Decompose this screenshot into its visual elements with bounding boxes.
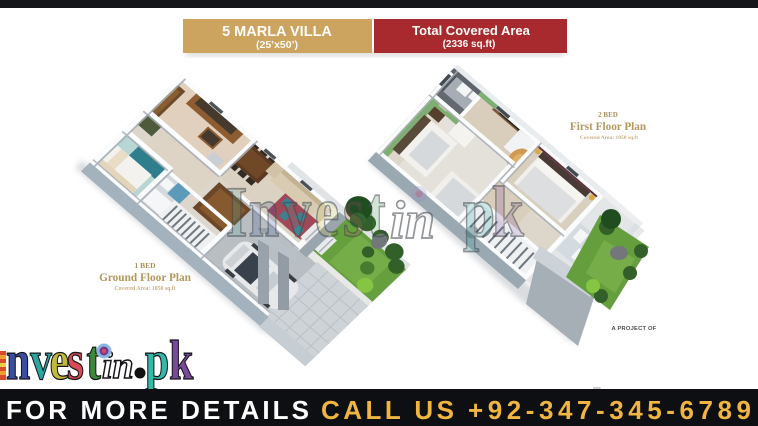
svg-text:s: s — [67, 329, 84, 391]
svg-text:p: p — [463, 173, 495, 253]
svg-text:s: s — [343, 172, 364, 252]
svg-text:First Floor Plan: First Floor Plan — [570, 121, 647, 133]
svg-text:(25’x50’): (25’x50’) — [256, 39, 298, 51]
svg-text:k: k — [492, 173, 525, 253]
svg-text:in: in — [390, 190, 435, 250]
svg-text:5 MARLA VILLA: 5 MARLA VILLA — [222, 24, 332, 40]
svg-text:n: n — [6, 329, 30, 391]
svg-text:+92-347-345-6789: +92-347-345-6789 — [468, 395, 751, 425]
svg-text:A PROJECT OF: A PROJECT OF — [611, 326, 656, 332]
svg-text:t: t — [367, 172, 386, 252]
svg-text:2 BED: 2 BED — [598, 111, 618, 119]
svg-text:1 BED: 1 BED — [134, 261, 156, 270]
svg-text:Ground Floor Plan: Ground Floor Plan — [99, 272, 192, 284]
svg-text:k: k — [169, 329, 193, 391]
svg-text:FOR MORE DETAILS: FOR MORE DETAILS — [6, 395, 309, 425]
svg-text:e: e — [315, 172, 339, 252]
svg-text:Covered Area: 1050 sq.ft: Covered Area: 1050 sq.ft — [114, 286, 175, 292]
svg-text:t: t — [86, 329, 101, 391]
svg-text:v: v — [284, 172, 311, 252]
svg-text:I: I — [226, 172, 247, 252]
svg-text:(2336 sq.ft): (2336 sq.ft) — [443, 39, 496, 50]
svg-text:n: n — [249, 172, 279, 252]
svg-text:Total Covered Area: Total Covered Area — [412, 23, 531, 38]
svg-text:Covered Area: 1050 sq.ft: Covered Area: 1050 sq.ft — [580, 135, 638, 141]
svg-text:p: p — [145, 329, 169, 391]
